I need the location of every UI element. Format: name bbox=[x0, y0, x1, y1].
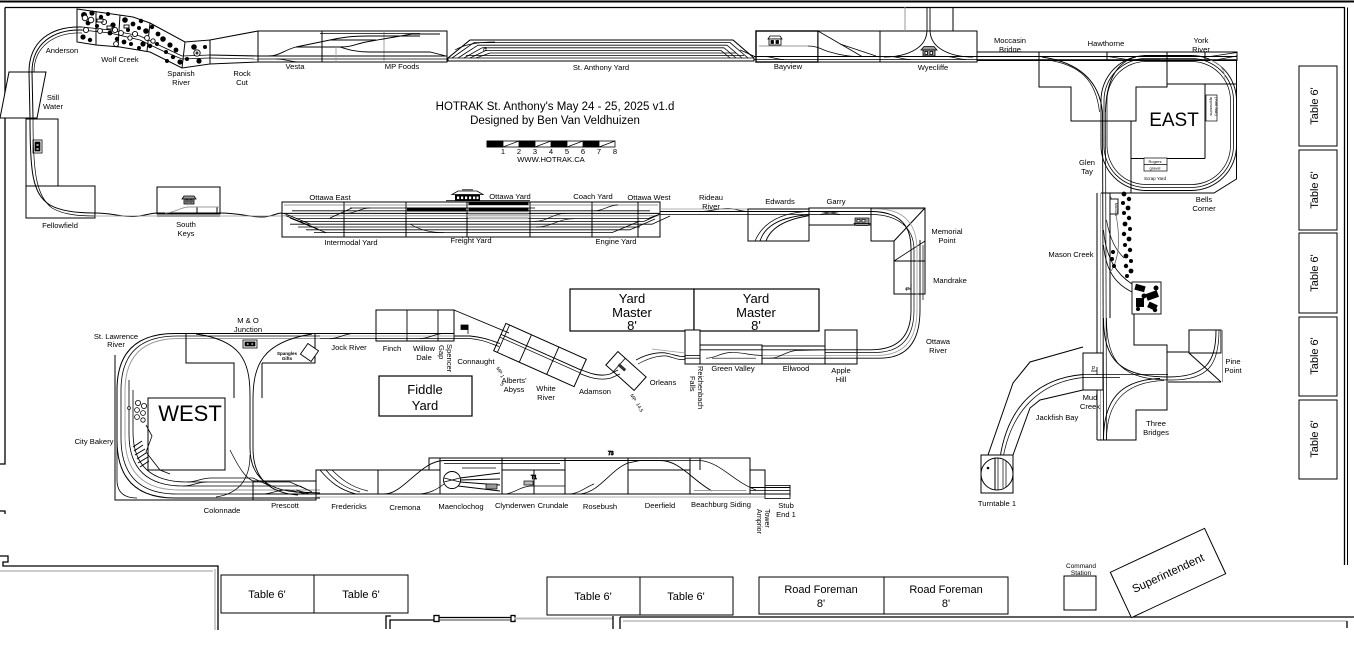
svg-text:Hill: Hill bbox=[836, 375, 847, 384]
svg-text:Clynderwen: Clynderwen bbox=[495, 501, 535, 510]
svg-text:MASON: MASON bbox=[1114, 203, 1118, 216]
svg-text:WWW.HOTRAK.CA: WWW.HOTRAK.CA bbox=[517, 155, 585, 164]
svg-text:Wyecliffe: Wyecliffe bbox=[918, 63, 949, 72]
svg-text:WEST: WEST bbox=[158, 401, 222, 426]
svg-text:York: York bbox=[1194, 36, 1209, 45]
svg-text:Ottawa East: Ottawa East bbox=[309, 193, 351, 202]
svg-text:Fredericks: Fredericks bbox=[331, 502, 367, 511]
svg-text:Mason Creek: Mason Creek bbox=[1048, 250, 1093, 259]
svg-text:Point: Point bbox=[938, 236, 956, 245]
svg-text:Ottawa West: Ottawa West bbox=[627, 193, 671, 202]
svg-text:Engine Yard: Engine Yard bbox=[595, 237, 636, 246]
svg-text:Vesta: Vesta bbox=[286, 62, 306, 71]
svg-text:Anderson: Anderson bbox=[46, 46, 79, 55]
svg-text:Table 6': Table 6' bbox=[1309, 337, 1321, 375]
svg-text:Falls: Falls bbox=[688, 376, 697, 392]
svg-text:Rosebush: Rosebush bbox=[583, 502, 617, 511]
svg-text:Moccasin: Moccasin bbox=[994, 36, 1026, 45]
svg-text:Road Foreman: Road Foreman bbox=[784, 584, 857, 596]
svg-text:Point: Point bbox=[1224, 366, 1242, 375]
svg-text:Corner: Corner bbox=[1192, 204, 1216, 213]
svg-text:Water: Water bbox=[43, 102, 63, 111]
svg-text:approachs: approachs bbox=[1209, 97, 1214, 116]
svg-text:8': 8' bbox=[942, 598, 950, 610]
svg-text:Garry: Garry bbox=[827, 197, 846, 206]
svg-text:Hawthorne: Hawthorne bbox=[1088, 39, 1125, 48]
svg-text:River: River bbox=[702, 202, 720, 211]
svg-text:8': 8' bbox=[817, 598, 825, 610]
svg-text:Willow: Willow bbox=[413, 344, 435, 353]
svg-text:Dale: Dale bbox=[416, 353, 432, 362]
svg-text:Finch: Finch bbox=[383, 344, 402, 353]
svg-text:Gifts: Gifts bbox=[282, 356, 293, 361]
svg-text:Cremona: Cremona bbox=[389, 503, 421, 512]
svg-text:Memorial: Memorial bbox=[931, 227, 963, 236]
svg-text:8: 8 bbox=[613, 147, 617, 156]
svg-text:Reichenbach: Reichenbach bbox=[696, 366, 705, 409]
svg-text:Designed by Ben Van Veldhuizen: Designed by Ben Van Veldhuizen bbox=[470, 115, 640, 127]
svg-text:River: River bbox=[929, 346, 947, 355]
svg-text:City Bakery: City Bakery bbox=[75, 437, 114, 446]
svg-text:Green Valley: Green Valley bbox=[711, 364, 755, 373]
svg-text:Gap: Gap bbox=[437, 345, 446, 359]
svg-text:P: P bbox=[906, 287, 910, 293]
svg-text:Yard: Yard bbox=[743, 291, 770, 306]
svg-text:Ottawa: Ottawa bbox=[926, 337, 951, 346]
svg-text:Orleans: Orleans bbox=[650, 378, 677, 387]
svg-text:Wolf Creek: Wolf Creek bbox=[101, 55, 139, 64]
svg-text:Rideau: Rideau bbox=[699, 193, 723, 202]
svg-text:Tay: Tay bbox=[1081, 167, 1093, 176]
svg-text:Jock River: Jock River bbox=[331, 343, 367, 352]
svg-text:7: 7 bbox=[597, 147, 601, 156]
svg-text:Mud: Mud bbox=[1083, 393, 1098, 402]
svg-text:Yard: Yard bbox=[619, 291, 646, 306]
svg-text:River: River bbox=[537, 393, 555, 402]
svg-text:Arnprior: Arnprior bbox=[755, 509, 762, 535]
svg-text:Maenclochog: Maenclochog bbox=[438, 502, 483, 511]
svg-text:Three: Three bbox=[1146, 419, 1166, 428]
svg-text:M & O: M & O bbox=[237, 316, 259, 325]
svg-text:1: 1 bbox=[501, 147, 505, 156]
svg-text:Edwards: Edwards bbox=[765, 197, 795, 206]
svg-text:T1: T1 bbox=[531, 475, 537, 481]
svg-text:EAST: EAST bbox=[1149, 110, 1199, 131]
svg-text:Fiddle: Fiddle bbox=[407, 382, 442, 397]
svg-text:MP Foods: MP Foods bbox=[385, 62, 420, 71]
svg-text:Bells: Bells bbox=[1196, 195, 1213, 204]
svg-text:White: White bbox=[536, 384, 555, 393]
svg-text:8': 8' bbox=[627, 318, 637, 333]
svg-text:Rogers: Rogers bbox=[1149, 159, 1162, 164]
svg-text:Ottawa Yard: Ottawa Yard bbox=[489, 192, 531, 201]
svg-text:a: a bbox=[483, 46, 487, 53]
svg-text:Jackfish Bay: Jackfish Bay bbox=[1036, 413, 1079, 422]
svg-text:Table 6': Table 6' bbox=[574, 591, 612, 603]
svg-text:Table 6': Table 6' bbox=[1309, 87, 1321, 125]
svg-text:Stub: Stub bbox=[778, 501, 794, 510]
svg-text:Creek: Creek bbox=[1080, 402, 1100, 411]
svg-text:Cut: Cut bbox=[236, 78, 249, 87]
svg-text:Junction: Junction bbox=[234, 325, 262, 334]
svg-text:Table 6': Table 6' bbox=[1309, 420, 1321, 458]
svg-text:Tower: Tower bbox=[763, 509, 770, 528]
svg-text:Command: Command bbox=[1066, 563, 1096, 570]
svg-text:Pine: Pine bbox=[1225, 357, 1240, 366]
svg-text:Yard: Yard bbox=[412, 398, 439, 413]
svg-text:Still: Still bbox=[47, 93, 60, 102]
svg-text:Ellwood: Ellwood bbox=[783, 364, 810, 373]
svg-text:Deerfield: Deerfield bbox=[645, 501, 675, 510]
svg-text:Fellowfield: Fellowfield bbox=[42, 221, 78, 230]
svg-text:Connaught: Connaught bbox=[457, 357, 495, 366]
svg-text:Apple: Apple bbox=[831, 366, 850, 375]
svg-text:Turntable 1: Turntable 1 bbox=[978, 499, 1016, 508]
svg-text:(York Sub): (York Sub) bbox=[1214, 97, 1219, 116]
svg-text:Intermodal Yard: Intermodal Yard bbox=[324, 238, 377, 247]
svg-text:River: River bbox=[172, 78, 190, 87]
svg-text:St. Anthony Yard: St. Anthony Yard bbox=[573, 63, 629, 72]
svg-text:Colonnade: Colonnade bbox=[204, 506, 241, 515]
svg-text:gravel: gravel bbox=[1150, 166, 1161, 171]
svg-text:Keys: Keys bbox=[178, 229, 195, 238]
svg-text:South: South bbox=[176, 220, 196, 229]
svg-text:Adamson: Adamson bbox=[579, 387, 611, 396]
svg-text:Table 6': Table 6' bbox=[667, 591, 705, 603]
svg-text:Beachburg Siding: Beachburg Siding bbox=[691, 500, 751, 509]
svg-text:73: 73 bbox=[608, 451, 614, 457]
svg-text:Alberts': Alberts' bbox=[501, 376, 527, 385]
svg-text:Bayview: Bayview bbox=[774, 62, 803, 71]
svg-text:Freight Yard: Freight Yard bbox=[450, 236, 491, 245]
svg-text:Abyss: Abyss bbox=[504, 385, 525, 394]
svg-text:HOTRAK St. Anthony's May 24 -: HOTRAK St. Anthony's May 24 - 25, 2025 v… bbox=[436, 101, 675, 113]
svg-text:Spanish: Spanish bbox=[167, 69, 194, 78]
svg-text:Glen: Glen bbox=[1079, 158, 1095, 167]
svg-text:Table 6': Table 6' bbox=[342, 589, 380, 601]
svg-text:Spencer: Spencer bbox=[445, 344, 454, 373]
svg-text:Bridges: Bridges bbox=[1143, 428, 1169, 437]
svg-text:Crundale: Crundale bbox=[538, 501, 569, 510]
svg-text:Coach Yard: Coach Yard bbox=[573, 192, 612, 201]
svg-text:River: River bbox=[107, 340, 125, 349]
svg-text:Scrap Yard: Scrap Yard bbox=[1144, 176, 1167, 181]
svg-text:Table 6': Table 6' bbox=[1309, 254, 1321, 292]
svg-text:Mandrake: Mandrake bbox=[933, 276, 967, 285]
svg-text:Prescott: Prescott bbox=[271, 501, 300, 510]
svg-text:Rock: Rock bbox=[233, 69, 251, 78]
svg-text:Station: Station bbox=[1071, 570, 1092, 577]
svg-text:End 1: End 1 bbox=[776, 510, 796, 519]
svg-text:Table 6': Table 6' bbox=[1309, 171, 1321, 209]
svg-text:Road Foreman: Road Foreman bbox=[909, 584, 982, 596]
svg-text:Table 6': Table 6' bbox=[248, 589, 286, 601]
svg-text:8': 8' bbox=[751, 318, 761, 333]
